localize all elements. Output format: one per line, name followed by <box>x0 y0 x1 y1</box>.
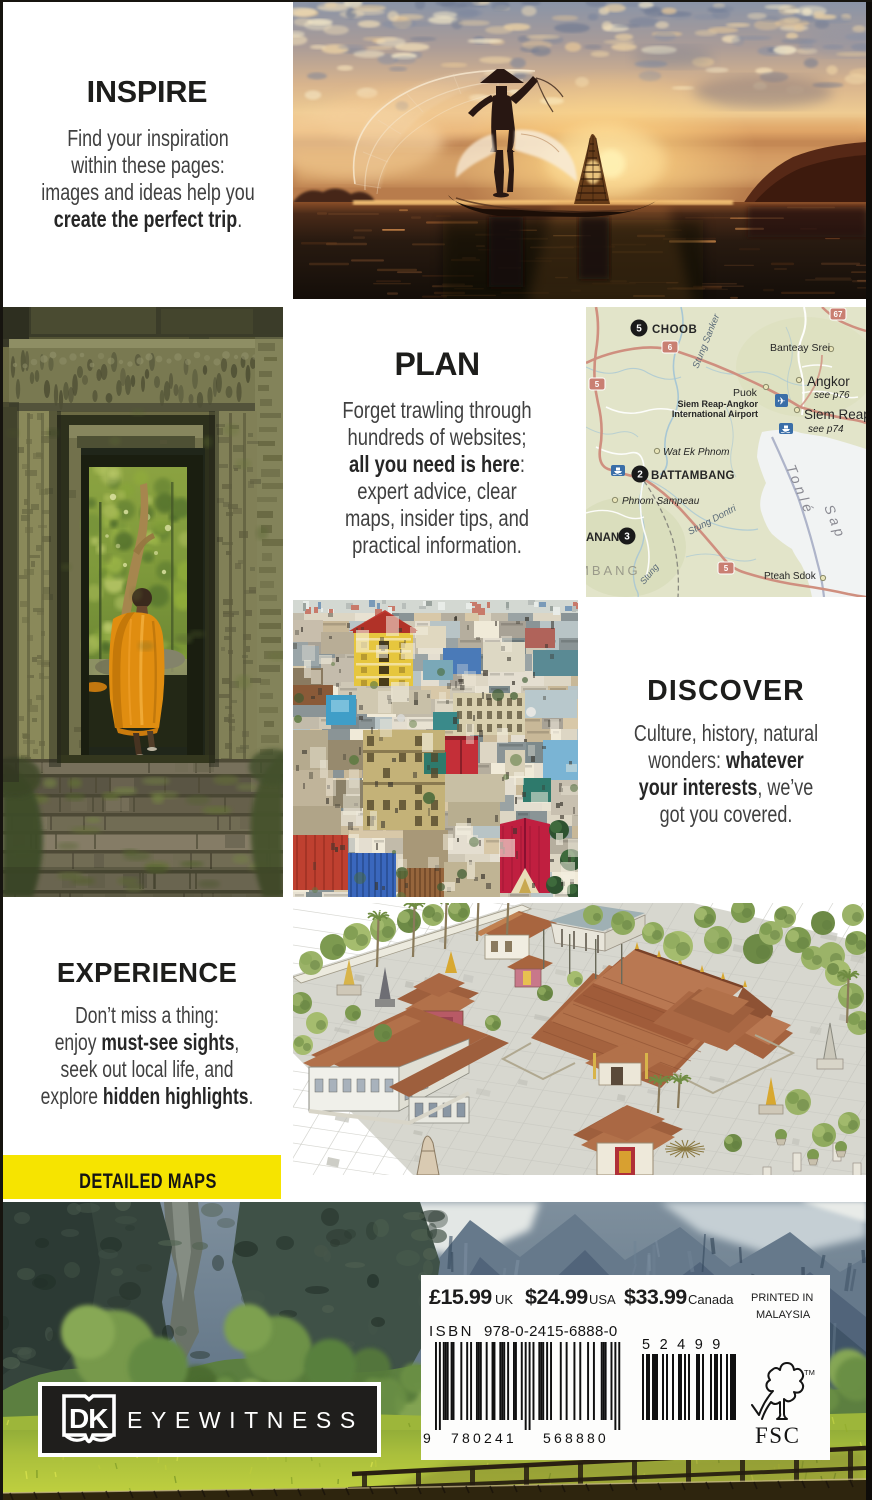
svg-text:TM: TM <box>804 1368 815 1377</box>
svg-text:5: 5 <box>636 324 642 335</box>
svg-text:see p74: see p74 <box>808 424 844 435</box>
svg-text:2: 2 <box>637 470 643 481</box>
svg-text:✈: ✈ <box>777 397 785 408</box>
svg-text:6: 6 <box>668 343 673 352</box>
svg-text:FSC: FSC <box>755 1423 800 1448</box>
svg-text:67: 67 <box>834 310 843 319</box>
svg-text:Puok: Puok <box>733 387 758 399</box>
svg-text:Siem Reap: Siem Reap <box>804 407 866 422</box>
svg-text:$24.99: $24.99 <box>525 1285 588 1309</box>
svg-text:£15.99: £15.99 <box>429 1285 492 1309</box>
svg-text:see p76: see p76 <box>814 390 850 401</box>
svg-text:MALAYSIA: MALAYSIA <box>756 1309 811 1321</box>
svg-text:52499: 52499 <box>642 1337 730 1353</box>
svg-text:MBANG: MBANG <box>586 563 641 578</box>
svg-text:Phnom Sampeau: Phnom Sampeau <box>622 496 700 507</box>
svg-text:9: 9 <box>423 1430 431 1446</box>
svg-text:CHOOB: CHOOB <box>652 324 697 336</box>
svg-text:Canada: Canada <box>688 1292 734 1307</box>
svg-text:Pteah Sdok: Pteah Sdok <box>764 571 817 582</box>
svg-text:Angkor: Angkor <box>807 374 850 389</box>
svg-text:ANAN: ANAN <box>586 532 619 544</box>
svg-text:Banteay Srei: Banteay Srei <box>770 342 830 354</box>
svg-text:USA: USA <box>589 1292 616 1307</box>
svg-text:5: 5 <box>595 380 600 389</box>
svg-text:UK: UK <box>495 1292 513 1307</box>
svg-text:BATTAMBANG: BATTAMBANG <box>651 470 735 482</box>
svg-text:978-0-2415-6888-0: 978-0-2415-6888-0 <box>484 1323 618 1340</box>
svg-text:$33.99: $33.99 <box>624 1285 687 1309</box>
svg-text:Siem Reap-Angkor: Siem Reap-Angkor <box>677 399 758 409</box>
svg-text:DK: DK <box>69 1403 108 1434</box>
svg-text:5: 5 <box>724 564 729 573</box>
svg-text:PRINTED IN: PRINTED IN <box>751 1292 813 1304</box>
svg-text:International Airport: International Airport <box>672 409 758 419</box>
svg-text:Wat Ek Phnom: Wat Ek Phnom <box>663 447 730 458</box>
svg-text:780241: 780241 <box>451 1430 517 1446</box>
svg-text:568880: 568880 <box>543 1430 609 1446</box>
svg-text:3: 3 <box>624 532 630 543</box>
svg-text:EYEWITNESS: EYEWITNESS <box>127 1407 364 1433</box>
svg-text:ISBN: ISBN <box>429 1323 474 1340</box>
